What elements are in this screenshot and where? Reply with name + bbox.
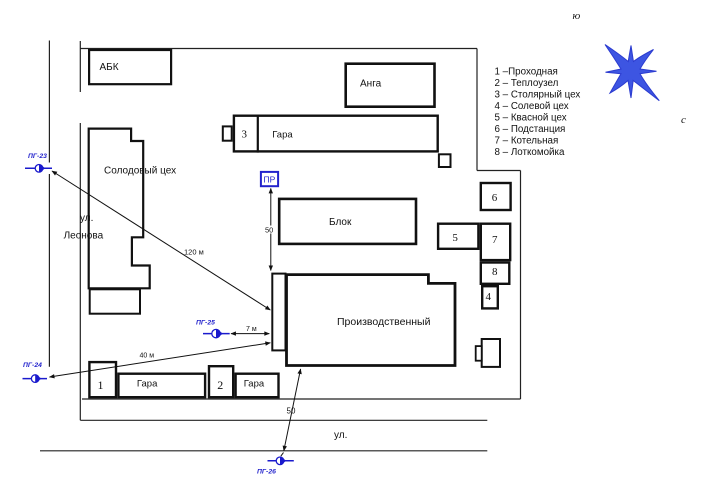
svg-text:7 м: 7 м: [246, 326, 257, 333]
svg-text:40 м: 40 м: [140, 353, 155, 360]
svg-text:4: 4: [486, 291, 492, 303]
svg-text:ю: ю: [573, 10, 581, 22]
svg-text:50: 50: [265, 226, 273, 235]
svg-text:ПГ-23: ПГ-23: [28, 153, 47, 160]
svg-text:Леонова: Леонова: [64, 231, 104, 242]
svg-text:7: 7: [492, 234, 498, 246]
svg-text:8 – Лоткомойка: 8 – Лоткомойка: [495, 147, 565, 158]
svg-text:3 – Столярный цех: 3 – Столярный цех: [495, 89, 581, 100]
svg-text:6 – Подстанция: 6 – Подстанция: [495, 124, 566, 135]
svg-text:1 –Проходная: 1 –Проходная: [495, 66, 558, 77]
svg-text:7 – Котельная: 7 – Котельная: [495, 136, 559, 147]
svg-text:2: 2: [217, 378, 223, 392]
svg-text:2 – Теплоузел: 2 – Теплоузел: [495, 78, 559, 89]
svg-text:Производственный: Производственный: [337, 316, 431, 328]
svg-text:ПГ-26: ПГ-26: [257, 469, 276, 476]
svg-text:120 м: 120 м: [184, 248, 204, 257]
svg-text:6: 6: [492, 192, 498, 204]
svg-text:Солодовый цех: Солодовый цех: [104, 166, 176, 177]
svg-text:3: 3: [242, 129, 248, 141]
svg-text:1: 1: [98, 378, 104, 392]
svg-text:Гара: Гара: [137, 379, 158, 390]
svg-text:ул.: ул.: [334, 430, 347, 441]
svg-text:ПГ-25: ПГ-25: [196, 320, 215, 327]
svg-text:Гара: Гара: [244, 379, 265, 390]
svg-text:50: 50: [287, 407, 296, 416]
svg-text:Блок: Блок: [329, 217, 352, 228]
svg-text:4 – Солевой цех: 4 – Солевой цех: [495, 101, 569, 112]
svg-text:Анга: Анга: [360, 79, 382, 90]
svg-text:Гара: Гара: [272, 130, 293, 141]
svg-text:АБК: АБК: [100, 62, 119, 73]
svg-text:ул.: ул.: [80, 213, 93, 224]
svg-text:ПГ-24: ПГ-24: [23, 362, 42, 369]
svg-text:5: 5: [452, 232, 458, 244]
svg-text:5 – Квасной цех: 5 – Квасной цех: [495, 113, 567, 124]
svg-text:ПР: ПР: [264, 175, 276, 185]
svg-text:с: с: [681, 114, 686, 126]
svg-text:8: 8: [492, 266, 498, 278]
